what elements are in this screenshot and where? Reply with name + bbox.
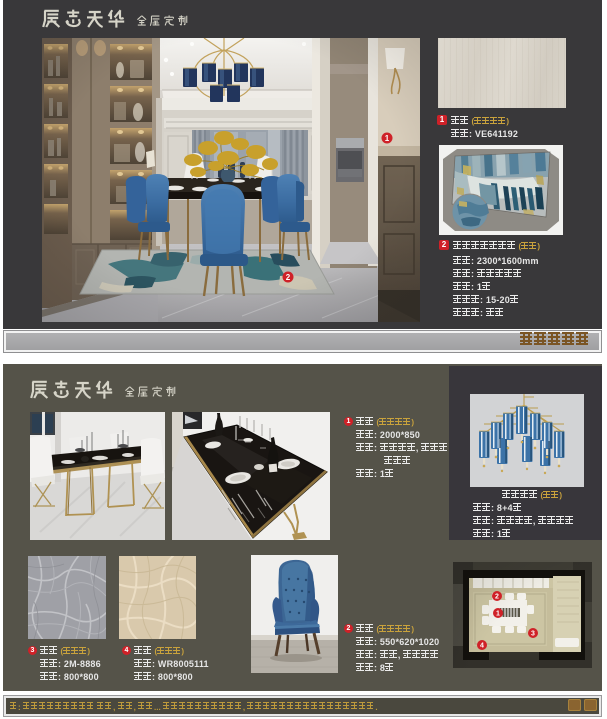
svg-text:2: 2 bbox=[286, 273, 291, 282]
svg-text:1: 1 bbox=[496, 611, 500, 618]
svg-text:1: 1 bbox=[385, 134, 390, 143]
svg-text:3: 3 bbox=[531, 631, 535, 638]
svg-text:4: 4 bbox=[480, 643, 484, 650]
svg-text:2: 2 bbox=[495, 594, 499, 601]
